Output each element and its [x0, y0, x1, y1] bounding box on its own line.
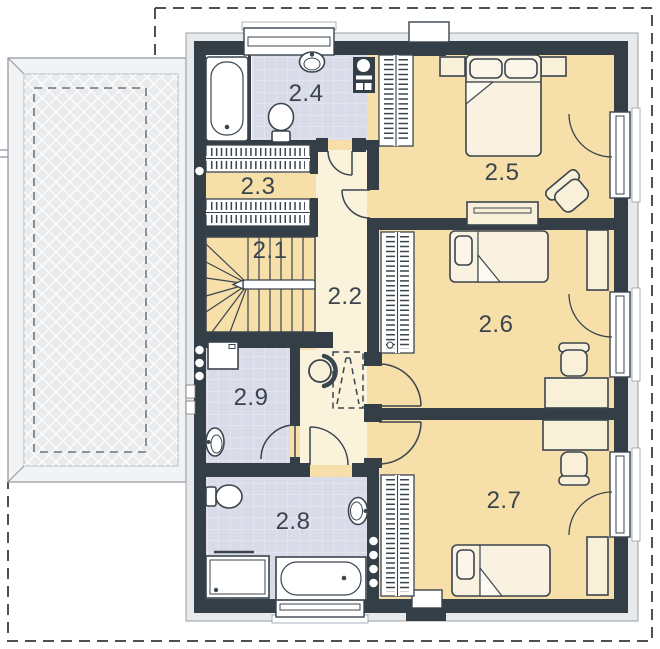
utility-sink [206, 428, 224, 456]
single-bed [452, 545, 550, 596]
nightstand-right [541, 57, 566, 76]
floor-plan-canvas: 2.1 2.2 2.3 2.4 2.5 2.6 2.7 2.8 2.9 [0, 0, 660, 649]
shelf [587, 537, 608, 595]
desk-chair [559, 452, 589, 485]
wardrobe-2-5 [379, 55, 413, 146]
wardrobe-2-6 [381, 232, 414, 353]
washbasin [349, 498, 368, 525]
toilet [269, 104, 294, 143]
room-label-2-4: 2.4 [289, 80, 324, 107]
wardrobe-knob [387, 342, 393, 348]
washbasin [300, 52, 325, 72]
terrace-hatch [24, 74, 178, 466]
bathtub [276, 557, 366, 600]
window-bottom-bathroom [272, 597, 368, 623]
shelf [587, 230, 608, 290]
single-bed [450, 231, 548, 282]
nightstand-left [440, 57, 465, 76]
window-top-bathroom [242, 22, 336, 55]
stair-handrail [243, 280, 315, 289]
room-label-2-5: 2.5 [485, 159, 520, 186]
washing-machine [208, 342, 238, 369]
desk-chair [559, 343, 589, 376]
bathtub [206, 57, 248, 141]
chimney-top [409, 22, 449, 56]
toilet [206, 485, 242, 508]
dresser [467, 202, 538, 225]
floor-plan-drawing: 2.1 2.2 2.3 2.4 2.5 2.6 2.7 2.8 2.9 [0, 0, 660, 649]
room-label-2-1: 2.1 [253, 237, 288, 264]
room-label-2-8: 2.8 [276, 508, 311, 535]
room-label-2-7: 2.7 [487, 487, 522, 514]
desk [545, 378, 608, 408]
terrace-roof [0, 58, 186, 482]
room-label-2-3: 2.3 [241, 173, 276, 200]
desk [543, 420, 608, 450]
double-bed [466, 55, 541, 156]
room-label-2-6: 2.6 [479, 311, 514, 338]
water-heater-unit [353, 57, 375, 93]
wardrobe-2-7 [381, 475, 414, 596]
shower-tray [206, 552, 269, 598]
room-label-2-9: 2.9 [234, 384, 269, 411]
terrace-exterior-lines [0, 150, 8, 157]
room-label-2-2: 2.2 [328, 283, 363, 310]
